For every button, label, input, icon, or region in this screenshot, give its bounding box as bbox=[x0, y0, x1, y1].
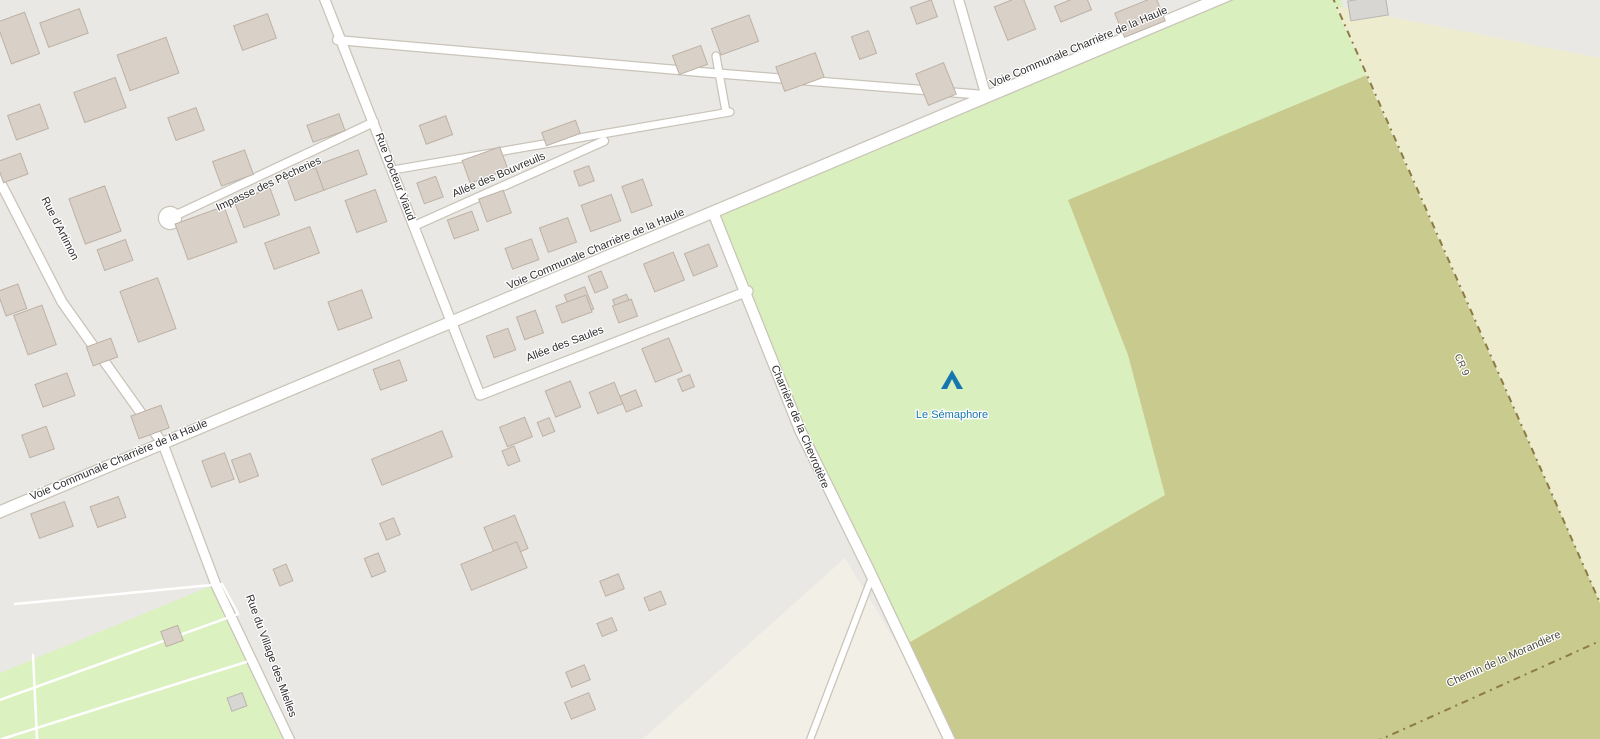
map-viewport[interactable]: Le SémaphoreImpasse des PêcheriesRue Doc… bbox=[0, 0, 1600, 739]
map-canvas[interactable]: Le SémaphoreImpasse des PêcheriesRue Doc… bbox=[0, 0, 1600, 739]
poi-le-semaphore: Le Sémaphore bbox=[916, 409, 988, 421]
